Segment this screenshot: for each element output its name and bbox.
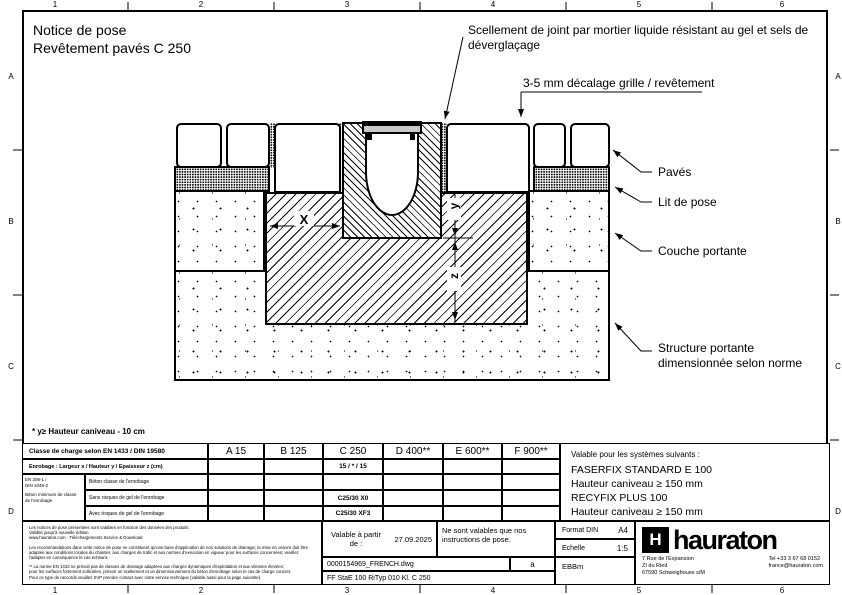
dims-cell — [502, 459, 560, 474]
fine-print-paragraph: Les notices de pose présentées sont vala… — [29, 525, 308, 541]
filename-cell: 0000154969_FRENCH.dwg — [322, 557, 510, 571]
grid-row-label-left: B — [5, 217, 17, 226]
dims-cell — [383, 459, 443, 474]
class-d400: D 400** — [383, 443, 443, 459]
systems-line: FASERFIX STANDARD E 100 — [571, 463, 712, 477]
page-title: Notice de pose Revêtement pavés C 250 — [33, 21, 191, 57]
class-c250: C 250 — [323, 443, 383, 459]
callout-lit-de-pose: Lit de pose — [658, 195, 717, 210]
grid-col-label-top: 6 — [775, 0, 789, 9]
dims-cell — [264, 459, 323, 474]
callout-paves: Pavés — [658, 165, 691, 180]
layer-lit-de-pose-right — [533, 166, 610, 192]
page-title-line2: Revêtement pavés C 250 — [33, 39, 191, 57]
fine-print-line: www.hauraton.com - Téléchargements Servi… — [29, 535, 308, 540]
author-cell: EBBm — [555, 557, 635, 585]
layer-couche-portante-right — [528, 190, 610, 272]
contact-email: france@hauraton.com — [768, 563, 823, 570]
concrete-row-label: Avec risques de gel de l'enrobage — [85, 506, 208, 521]
concrete-standard-cell: EN 206-1 / DIN 1045-2 Béton minimum de c… — [22, 474, 85, 521]
format-value: A4 — [618, 526, 628, 535]
scale-value: 1:5 — [617, 544, 628, 553]
hauraton-logo-icon: H — [642, 527, 669, 553]
valid-from-label: Valable à partir de : — [327, 530, 385, 548]
concrete-cell — [264, 490, 323, 506]
channel-interior — [365, 129, 419, 216]
systems-heading: Valable pour les systèmes suivants : — [571, 450, 712, 459]
concrete-cell — [443, 490, 502, 506]
concrete-cell — [264, 474, 323, 490]
grid-row-label-left: A — [5, 72, 17, 81]
brand-contact: Tel +33 3 67 68 0152 france@hauraton.com — [768, 556, 823, 577]
dims-row-label: Enrobage : Largeur x / Hauteur y / Epais… — [22, 459, 208, 474]
page-title-line1: Notice de pose — [33, 21, 191, 39]
class-b125: B 125 — [264, 443, 323, 459]
class-e600: E 600** — [443, 443, 502, 459]
grid-col-label-top: 2 — [194, 0, 208, 9]
grid-col-label-bottom: 5 — [632, 586, 646, 595]
grid-row-label-left: C — [5, 362, 17, 371]
format-label: Format DIN — [562, 527, 598, 534]
concrete-cell-c250: C25/30 X0 — [323, 490, 383, 506]
drawing-sheet: 1 2 3 4 5 6 1 2 3 4 5 6 A B C D A B C D … — [0, 0, 842, 595]
systems-box: Valable pour les systèmes suivants : FAS… — [560, 443, 830, 521]
concrete-row-label: Sans risques de gel de l'enrobage — [85, 490, 208, 506]
concrete-cell — [443, 506, 502, 521]
address-line: 7 Rue de l'Expansion — [642, 556, 705, 563]
concrete-cell-c250 — [323, 474, 383, 490]
fine-print-line: pour les surfaces fortement sollicitées,… — [29, 569, 308, 574]
fine-print-paragraph: Les recommandations dans cette notice de… — [29, 545, 308, 561]
grid-col-label-bottom: 6 — [775, 586, 789, 595]
concrete-cell — [208, 506, 264, 521]
paver-block — [533, 123, 566, 168]
contact-phone: Tel +33 3 67 68 0152 — [768, 556, 823, 563]
callout-structure-line1: Structure portante — [658, 341, 802, 356]
fine-print-line: Pour ce type de raccords veuillez SVP pr… — [29, 575, 308, 580]
address-line: 67590 Schweighouse s/M — [642, 570, 705, 577]
concrete-cell — [502, 474, 560, 490]
concrete-cell — [383, 506, 443, 521]
fine-print-paragraph: ** La norme EN 1433 ne prévoit pas de cl… — [29, 564, 308, 580]
standard-line: DIN 1045-2 — [25, 483, 77, 489]
concrete-cell — [208, 474, 264, 490]
paver-slab-right — [446, 123, 530, 193]
mortar-joint — [339, 123, 344, 193]
grid-row-label-right: C — [832, 362, 842, 371]
layer-lit-de-pose-left — [174, 166, 270, 192]
grid-col-label-bottom: 1 — [48, 586, 62, 595]
paver-block — [226, 123, 270, 168]
hauraton-wordmark: hauraton — [673, 527, 777, 553]
dims-cell — [443, 459, 502, 474]
grid-col-label-bottom: 4 — [486, 586, 500, 595]
standard-line: Béton minimum de classe — [25, 492, 77, 498]
concrete-cell — [383, 490, 443, 506]
standard-line: de l'enrobage — [25, 498, 77, 504]
grid-col-label-top: 4 — [486, 0, 500, 9]
concrete-cell — [264, 506, 323, 521]
concrete-cell — [502, 490, 560, 506]
fine-print-line: l'adapter en conséquence le cas échéant. — [29, 555, 308, 560]
concrete-cell — [208, 490, 264, 506]
callout-structure-portante: Structure portante dimensionnée selon no… — [658, 341, 802, 371]
grid-col-label-top: 5 — [632, 0, 646, 9]
systems-line: RECYFIX PLUS 100 — [571, 491, 712, 505]
grid-row-label-right: B — [832, 217, 842, 226]
address-line: ZI du Ried — [642, 563, 705, 570]
systems-line: Hauteur caniveau ≥ 150 mm — [571, 505, 712, 519]
valid-from-date: 27.09.2025 — [385, 535, 432, 544]
grate-seat-left — [367, 132, 372, 140]
concrete-cell — [443, 474, 502, 490]
paver-block — [570, 123, 610, 168]
grid-row-label-right: A — [832, 72, 842, 81]
class-a15: A 15 — [208, 443, 264, 459]
brand-block: H hauraton 7 Rue de l'Expansion ZI du Ri… — [635, 521, 830, 585]
grid-col-label-bottom: 2 — [194, 586, 208, 595]
fine-print: Les notices de pose présentées sont vala… — [22, 521, 322, 585]
dims-cell-c250: 15 / * / 15 — [323, 459, 383, 474]
concrete-cell-c250: C25/30 XF3 — [323, 506, 383, 521]
grate-seat-right — [410, 132, 415, 140]
grid-row-label-right: D — [832, 507, 842, 516]
concrete-cell — [502, 506, 560, 521]
class-row-label: Classe de charge selon EN 1433 / DIN 195… — [22, 443, 208, 459]
callout-grate-offset: 3-5 mm décalage grille / revêtement — [523, 76, 714, 91]
mortar-joint — [270, 123, 275, 168]
callout-couche-portante: Couche portante — [658, 244, 747, 259]
grid-col-label-top: 1 — [48, 0, 62, 9]
concrete-row-label: Béton classe de l'enrobage — [85, 474, 208, 490]
paver-slab-left — [274, 123, 341, 193]
format-cell: Format DIN A4 — [555, 521, 635, 539]
grid-row-label-left: D — [5, 507, 17, 516]
revision-cell: a — [510, 557, 555, 571]
valid-from-cell: Valable à partir de : 27.09.2025 — [322, 521, 437, 557]
scale-cell: Echelle 1:5 — [555, 539, 635, 557]
dims-cell — [208, 459, 264, 474]
class-f900: F 900** — [502, 443, 560, 459]
drawing-code-cell: FF StaE 100 RiTyp 010 Kl. C 250 — [322, 571, 555, 585]
paver-block — [176, 123, 222, 168]
layer-couche-portante-left — [174, 190, 265, 272]
callout-sealant: Scellement de joint par mortier liquide … — [468, 23, 828, 53]
systems-line: Hauteur caniveau ≥ 150 mm — [571, 477, 712, 491]
footnote: * y≥ Hauteur caniveau - 10 cm — [32, 427, 145, 436]
brand-address: 7 Rue de l'Expansion ZI du Ried 67590 Sc… — [642, 556, 705, 577]
grid-col-label-bottom: 3 — [340, 586, 354, 595]
concrete-cell — [383, 474, 443, 490]
mortar-joint — [441, 123, 447, 193]
scale-label: Echelle — [562, 545, 585, 552]
callout-structure-line2: dimensionnée selon norme — [658, 356, 802, 371]
grid-col-label-top: 3 — [340, 0, 354, 9]
instructions-note: Ne sont valables que nos instructions de… — [437, 521, 555, 557]
